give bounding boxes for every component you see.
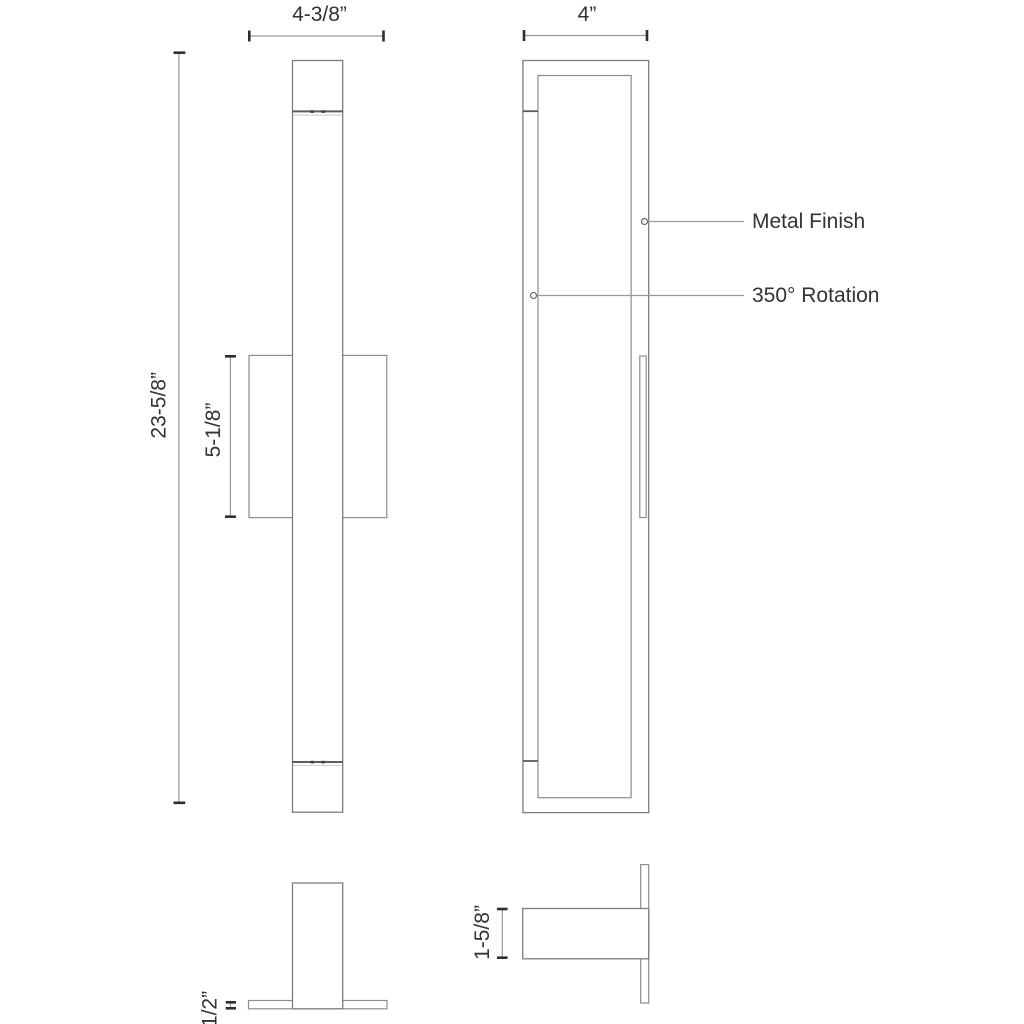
- svg-text:23-5/8”: 23-5/8”: [148, 372, 171, 439]
- svg-text:Metal Finish: Metal Finish: [752, 210, 865, 233]
- svg-text:350° Rotation: 350° Rotation: [752, 284, 880, 307]
- svg-text:1/2”: 1/2”: [199, 991, 222, 1024]
- svg-text:4”: 4”: [578, 3, 597, 26]
- svg-text:4-3/8”: 4-3/8”: [292, 3, 347, 26]
- svg-text:1-5/8”: 1-5/8”: [471, 905, 494, 960]
- svg-text:5-1/8”: 5-1/8”: [202, 403, 225, 458]
